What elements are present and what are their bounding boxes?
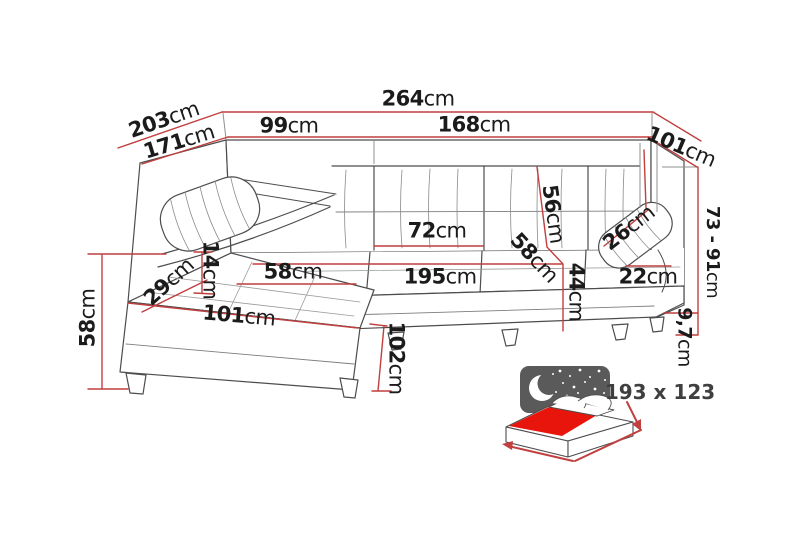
dim-total-width-label: 264cm [382, 89, 455, 110]
dim-back-cushion-label: 72cm [408, 221, 467, 242]
sleeping-area-size-label: 193 x 123 [605, 382, 715, 402]
dim-chaise-depth-label: 102cm [386, 322, 407, 395]
dimension-diagram: 264cm 99cm 168cm 203cm 171cm 101cm 73 - … [0, 0, 800, 533]
sofa-dimension-illustration [0, 0, 800, 533]
dim-headrest-left-label: 14cm [200, 241, 221, 300]
dim-armrest-right-label: 22cm [619, 267, 678, 288]
dim-leg-height-label: 9,7cm [675, 307, 694, 367]
dim-seat-width-label: 195cm [404, 267, 477, 288]
dim-back-right-section-label: 168cm [438, 115, 511, 136]
dim-height-adjustable-label: 73 - 91cm [703, 206, 721, 298]
dim-back-left-section-label: 99cm [260, 116, 319, 137]
dim-seat-height-front-label: 44cm [566, 263, 587, 322]
dim-chaise-seat-label: 58cm [264, 262, 323, 283]
dim-seat-height-left-label: 58cm [78, 289, 99, 348]
